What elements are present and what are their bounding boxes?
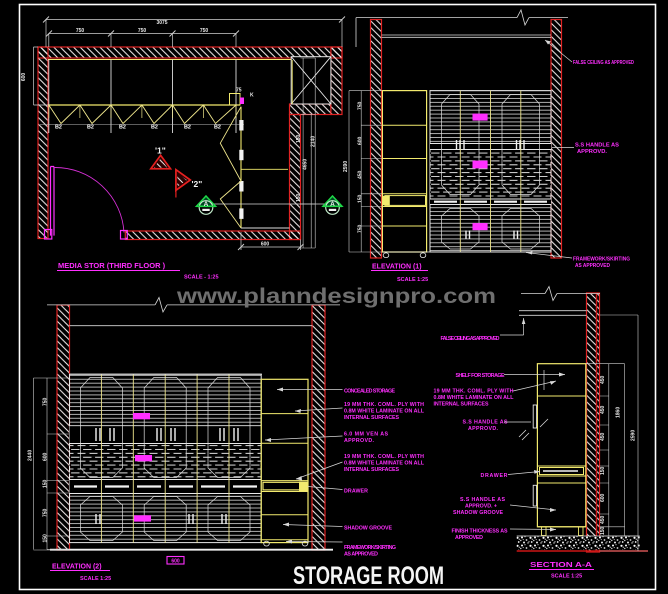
svg-text:2590: 2590 [343, 161, 349, 172]
svg-text:APPROVD.: APPROVD. [344, 438, 375, 444]
svg-text:INTERNAL SURFACES: INTERNAL SURFACES [344, 467, 399, 473]
svg-text:2140: 2140 [311, 136, 317, 147]
svg-text:3075: 3075 [156, 20, 167, 26]
svg-text:150: 150 [358, 194, 364, 203]
svg-text:B2: B2 [184, 125, 191, 131]
svg-text:600: 600 [21, 73, 27, 82]
svg-text:B2: B2 [87, 125, 94, 131]
svg-text:A: A [204, 201, 209, 208]
svg-text:www.planndesignpro.com: www.planndesignpro.com [176, 284, 496, 308]
svg-text:SCALE 1:25: SCALE 1:25 [80, 576, 111, 582]
svg-text:B2: B2 [151, 125, 158, 131]
svg-text:SCALE 1:25: SCALE 1:25 [551, 574, 582, 580]
svg-text:750: 750 [43, 397, 49, 406]
svg-text:150: 150 [296, 134, 302, 143]
svg-text:450: 450 [600, 432, 606, 441]
svg-text:B2: B2 [119, 125, 126, 131]
svg-text:MEDIA STOR (THIRD FLOOR ): MEDIA STOR (THIRD FLOOR ) [58, 261, 166, 270]
svg-text:600: 600 [358, 136, 364, 145]
svg-text:CONCEALED STORAGE: CONCEALED STORAGE [344, 389, 395, 395]
svg-text:150: 150 [43, 534, 49, 543]
svg-text:STORAGE ROOM: STORAGE ROOM [293, 562, 444, 590]
svg-text:K: K [250, 93, 254, 99]
svg-text:6.0 MM VEN AS: 6.0 MM VEN AS [344, 432, 388, 438]
svg-text:DRAWER: DRAWER [481, 473, 508, 479]
svg-text:'1": '1" [155, 146, 166, 156]
svg-text:S.S HANDLE AS: S.S HANDLE AS [463, 420, 508, 426]
svg-text:19 MM THK. COML. PLY WITH: 19 MM THK. COML. PLY WITH [344, 454, 424, 460]
svg-text:450: 450 [600, 515, 606, 524]
svg-text:0.8M WHITE LAMINATE ON ALL: 0.8M WHITE LAMINATE ON ALL [434, 395, 515, 401]
svg-text:150: 150 [296, 193, 302, 202]
svg-text:600: 600 [600, 493, 606, 502]
svg-text:FALSE CEILING AS APPROVED: FALSE CEILING AS APPROVED [441, 336, 500, 342]
svg-text:SCALE 1:25: SCALE 1:25 [397, 277, 428, 283]
svg-text:APPROVD.: APPROVD. [468, 426, 499, 432]
svg-text:0.8M WHITE LAMINATE ON ALL: 0.8M WHITE LAMINATE ON ALL [344, 461, 425, 467]
svg-text:INTERNAL SURFACES: INTERNAL SURFACES [434, 402, 489, 408]
svg-text:FRAMEWORK/SKIRTING: FRAMEWORK/SKIRTING [344, 545, 396, 551]
svg-text:APPROVED: APPROVED [455, 535, 483, 541]
svg-text:ELEVATION (2): ELEVATION (2) [52, 564, 102, 571]
svg-text:FINISH THICKNESS AS: FINISH THICKNESS AS [452, 529, 508, 535]
svg-text:750: 750 [200, 28, 209, 34]
svg-text:DRAWER: DRAWER [344, 489, 368, 495]
svg-text:SECTION A-A: SECTION A-A [530, 562, 592, 569]
svg-text:APPROVD.: APPROVD. [577, 149, 608, 155]
svg-text:750: 750 [358, 101, 364, 110]
svg-text:S.S HANDLE AS: S.S HANDLE AS [575, 143, 619, 149]
svg-text:B2: B2 [214, 125, 221, 131]
svg-text:750: 750 [358, 224, 364, 233]
svg-text:2590: 2590 [631, 430, 637, 441]
svg-text:A: A [330, 201, 335, 208]
svg-text:750: 750 [76, 28, 85, 34]
svg-text:750: 750 [43, 508, 49, 517]
svg-text:600: 600 [171, 559, 180, 565]
svg-text:450: 450 [358, 170, 364, 179]
svg-text:FRAMEWORK/SKIRTING: FRAMEWORK/SKIRTING [573, 257, 630, 263]
svg-text:FALSE CEILING AS APPROVED: FALSE CEILING AS APPROVED [573, 60, 634, 66]
svg-text:'2": '2" [192, 179, 203, 189]
svg-text:75: 75 [236, 88, 242, 94]
svg-text:600: 600 [43, 452, 49, 461]
svg-text:AS APPROVED: AS APPROVED [344, 552, 378, 558]
svg-text:19 MM THK. COML. PLY WITH: 19 MM THK. COML. PLY WITH [434, 389, 514, 395]
svg-text:750: 750 [138, 28, 147, 34]
svg-text:450: 450 [600, 375, 606, 384]
svg-text:4650: 4650 [303, 159, 309, 170]
svg-text:600: 600 [261, 242, 270, 248]
svg-text:SCALE - 1:25: SCALE - 1:25 [184, 275, 219, 281]
svg-text:SHADOW GROOVE: SHADOW GROOVE [453, 510, 503, 516]
svg-text:ELEVATION (1): ELEVATION (1) [372, 264, 422, 271]
svg-text:SHADOW GROOVE: SHADOW GROOVE [344, 526, 392, 532]
svg-text:19 MM THK. COML. PLY WITH: 19 MM THK. COML. PLY WITH [344, 402, 424, 408]
svg-text:1860: 1860 [616, 407, 622, 418]
svg-text:AS APPROVED: AS APPROVED [575, 263, 610, 269]
svg-text:S.S HANDLE AS: S.S HANDLE AS [460, 497, 505, 503]
svg-text:SHELF FOR STORAGE: SHELF FOR STORAGE [456, 373, 505, 379]
svg-text:150: 150 [43, 479, 49, 488]
svg-text:2440: 2440 [28, 450, 34, 461]
svg-text:150: 150 [600, 466, 606, 475]
svg-text:0.8M WHITE LAMINATE ON ALL: 0.8M WHITE LAMINATE ON ALL [344, 409, 425, 415]
svg-text:APPROVD. +: APPROVD. + [465, 504, 497, 510]
svg-text:INTERNAL SURFACES: INTERNAL SURFACES [344, 415, 399, 421]
svg-text:450: 450 [600, 405, 606, 414]
svg-text:150: 150 [600, 526, 606, 535]
svg-text:B2: B2 [55, 125, 62, 131]
